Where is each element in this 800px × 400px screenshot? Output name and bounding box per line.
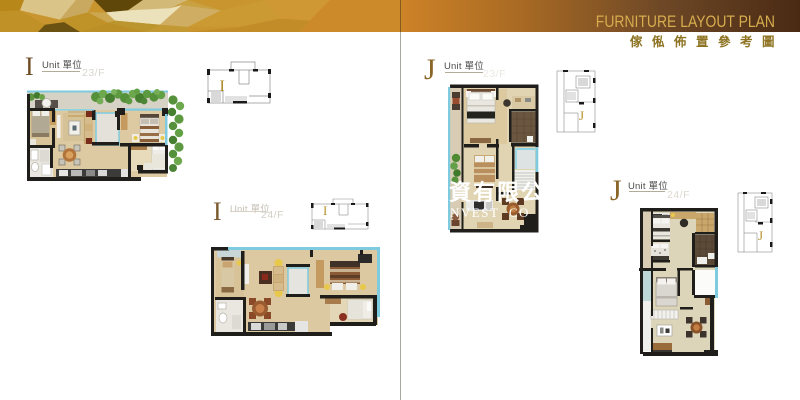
svg-text:I: I bbox=[323, 203, 327, 218]
svg-text:J: J bbox=[579, 108, 584, 123]
svg-text:I: I bbox=[220, 78, 225, 95]
svg-text:J: J bbox=[758, 228, 763, 243]
